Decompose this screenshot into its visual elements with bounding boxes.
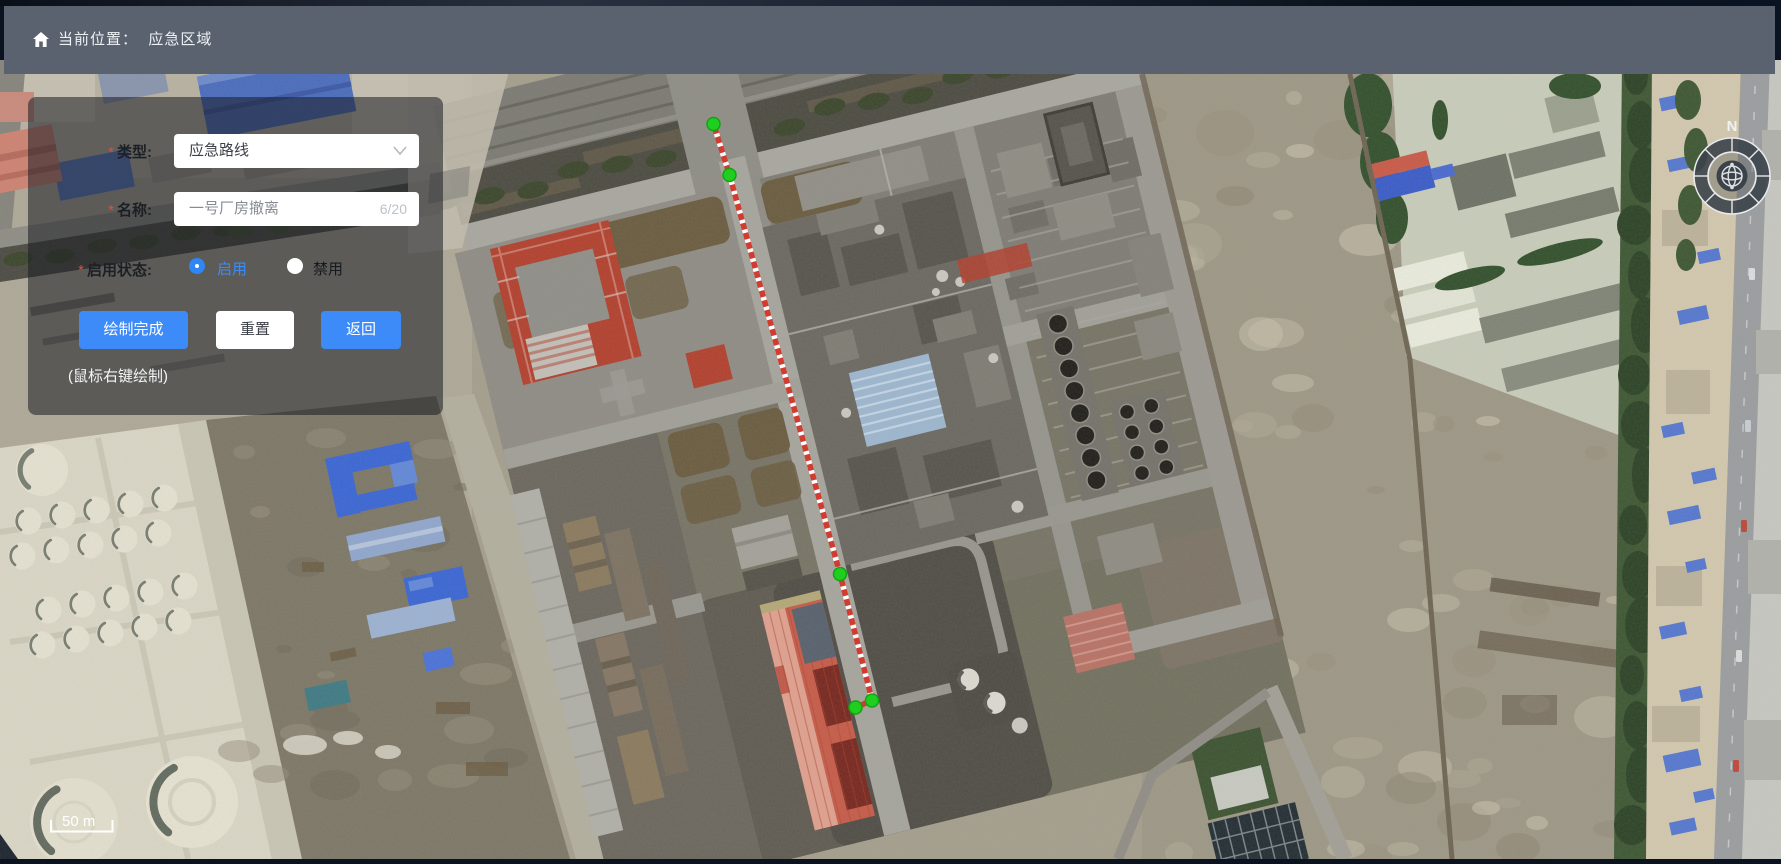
svg-text:N: N xyxy=(1727,118,1738,135)
svg-text:50 m: 50 m xyxy=(62,813,95,830)
